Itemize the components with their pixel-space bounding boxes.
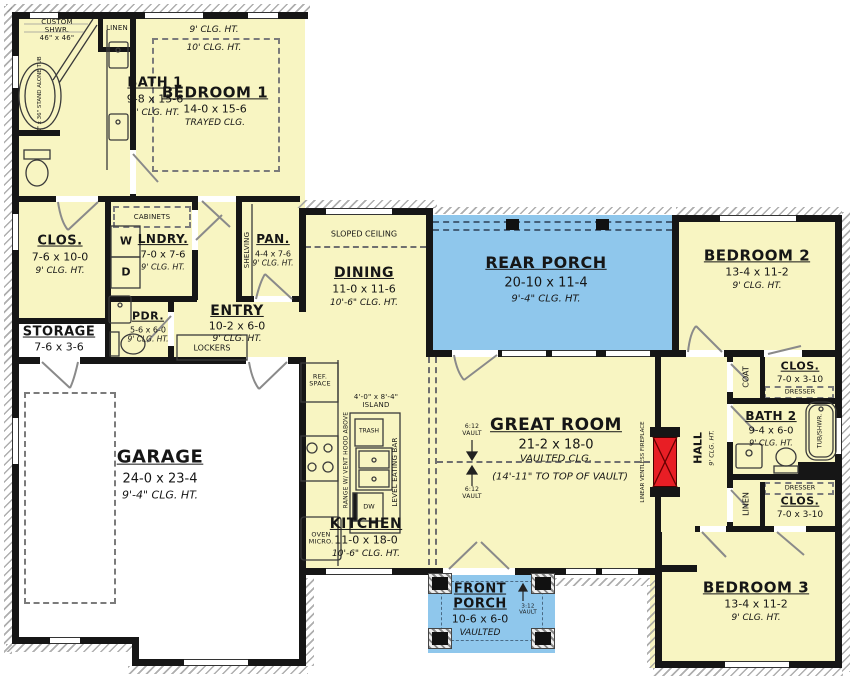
kitchen-name: KITCHEN [330, 516, 402, 532]
rear-porch-dims: 20-10 x 11-4 [504, 277, 587, 292]
dining-name: DINING [334, 265, 394, 281]
rear-porch-name: REAR PORCH [485, 254, 606, 272]
door-closet1 [58, 202, 98, 230]
front-porch-vault-label: 3:12VAULT [519, 604, 537, 617]
vault-arrow-down [467, 440, 477, 460]
sloped-ceiling-label: SLOPED CEILING [331, 229, 397, 238]
hall-clg: 9' CLG. HT. [708, 430, 715, 465]
linen2-label: LINEN [741, 492, 750, 516]
garage-clg: 9'-4" CLG. HT. [122, 490, 198, 503]
dining-dims: 11-0 x 11-6 [332, 284, 395, 297]
clos2-name: CLOS. [781, 361, 820, 374]
storage-name: STORAGE [23, 326, 95, 341]
bedroom1-clg: TRAYED CLG. [185, 118, 245, 128]
vault-arrows [467, 440, 527, 601]
hall-name: HALL [693, 432, 706, 464]
bedroom1-name: BEDROOM 1 [162, 84, 268, 101]
bedroom1-clg-outer: 9' CLG. HT. [189, 25, 238, 35]
ref-space-label: REF.SPACE [309, 374, 331, 389]
tub1-label: 60" x 36" STAND ALONE TUB [37, 56, 43, 135]
dresser2-label: DRESSER [785, 388, 816, 395]
trash-label: TRASH [359, 429, 379, 436]
vault-note: (14'-11" TO TOP OF VAULT) [492, 471, 628, 483]
bedroom2-clg: 9' CLG. HT. [732, 281, 781, 291]
lndry-clg: 9' CLG. HT. [141, 262, 185, 271]
pdr-dims: 5-6 x 6-0 [130, 325, 166, 334]
entry-name: ENTRY [210, 303, 263, 319]
cabinets-label: CABINETS [134, 213, 171, 221]
coat-label: COAT [741, 366, 750, 387]
entry-dims: 10-2 x 6-0 [209, 321, 265, 334]
clos1-clg: 9' CLG. HT. [35, 266, 84, 276]
pdr-clg: 9' CLG. HT. [128, 336, 169, 345]
door-porch [454, 355, 497, 380]
eating-bar-label: LEVEL EATING BAR [391, 437, 399, 506]
door-front-double [449, 542, 509, 569]
kitchen-clg: 10'-6" CLG. HT. [332, 549, 400, 559]
kitchen-dims: 11-0 x 18-0 [334, 535, 397, 548]
front-porch-clg: VAULTED [460, 628, 501, 638]
bath2-clg: 9' CLG. HT. [749, 438, 793, 447]
dryer-label: D [121, 267, 130, 280]
great-room-clg: VAULTED CLG. [520, 453, 592, 465]
range-label: RANGE W/ VENT HOOD ABOVE [344, 412, 351, 509]
clos3-name: CLOS. [781, 496, 820, 509]
door-bedroom3 [702, 532, 726, 557]
lndry-dims: 7-0 x 7-6 [141, 249, 186, 261]
bath2-dims: 9-4 x 6-0 [749, 425, 794, 437]
rear-porch-clg: 9'-4" CLG. HT. [511, 293, 580, 305]
door-laundry [196, 215, 222, 240]
pan-name: PAN. [256, 233, 290, 247]
vault-arrow-up [467, 466, 477, 486]
bedroom3-name: BEDROOM 3 [703, 579, 809, 596]
door-bedroom2 [688, 326, 722, 352]
garage-dims: 24-0 x 23-4 [123, 473, 198, 488]
clos1-name: CLOS. [37, 235, 82, 250]
vault-label-b: 6:12VAULT [462, 487, 481, 501]
bedroom3-dims: 13-4 x 11-2 [724, 599, 787, 612]
bedroom1-clg-inner: 10' CLG. HT. [187, 43, 242, 53]
front-porch-name1: FRONT [454, 583, 506, 598]
vault-label-a: 6:12VAULT [462, 424, 481, 438]
bedroom3-clg: 9' CLG. HT. [731, 613, 780, 623]
bath2-name: BATH 2 [745, 410, 796, 424]
front-porch-name2: PORCH [453, 598, 507, 613]
linen1-label: LINEN [106, 24, 128, 32]
fireplace-x [653, 437, 677, 487]
pdr-name: PDR. [132, 311, 164, 324]
door-storage [42, 362, 78, 388]
tub2-label: TUB/SHWR. [818, 414, 825, 448]
clos3-dims: 7-0 x 3-10 [777, 510, 823, 520]
bedroom2-dims: 13-4 x 11-2 [725, 267, 788, 280]
porch-vault-arrow-up [519, 584, 527, 601]
floor-plan: CUSTOMSHWR.46" x 46" 60" x 36" STAND ALO… [0, 0, 850, 680]
door-pantry [256, 274, 292, 299]
oven-micro-label: OVENMICRO. [309, 532, 334, 547]
door-bath1-hall [133, 154, 158, 182]
front-porch-dims: 10-6 x 6-0 [452, 614, 508, 627]
shelving-label: SHELVING [243, 232, 251, 268]
great-room-dims: 21-2 x 18-0 [519, 439, 594, 454]
island-dims-label: 4'-0" x 8'-4"ISLAND [354, 393, 398, 409]
clos1-dims: 7-6 x 10-0 [32, 252, 88, 265]
bedroom1-dims: 14-0 x 15-6 [183, 104, 246, 117]
pan-dims: 4-4 x 7-6 [255, 249, 291, 258]
pan-clg: 9' CLG. HT. [253, 260, 294, 269]
shower-label: CUSTOMSHWR.46" x 46" [40, 18, 75, 42]
storage-dims: 7-6 x 3-6 [34, 342, 83, 355]
great-room-name: GREAT ROOM [490, 416, 622, 436]
dw-label: DW [363, 503, 374, 510]
clos2-dims: 7-0 x 3-10 [777, 375, 823, 385]
vanity1-icon [107, 30, 128, 170]
lockers-label: LOCKERS [194, 343, 231, 352]
door-closet3 [777, 532, 804, 555]
door-garage-entry [249, 362, 287, 389]
fireplace-label: LINEAR VENTLESS FIREPLACE [640, 421, 646, 502]
toilet-icon [24, 150, 50, 186]
dining-clg: 10'-6" CLG. HT. [330, 298, 398, 308]
door-bedroom1 [202, 201, 230, 227]
washer-label: W [120, 236, 132, 249]
dresser3-label: DRESSER [785, 484, 816, 491]
garage-name: GARAGE [117, 448, 204, 469]
bedroom2-name: BEDROOM 2 [704, 247, 810, 264]
bath1-clg: 9' CLG. HT. [130, 108, 179, 118]
door-closet2 [768, 346, 801, 354]
lndry-name: LNDRY. [138, 233, 189, 247]
